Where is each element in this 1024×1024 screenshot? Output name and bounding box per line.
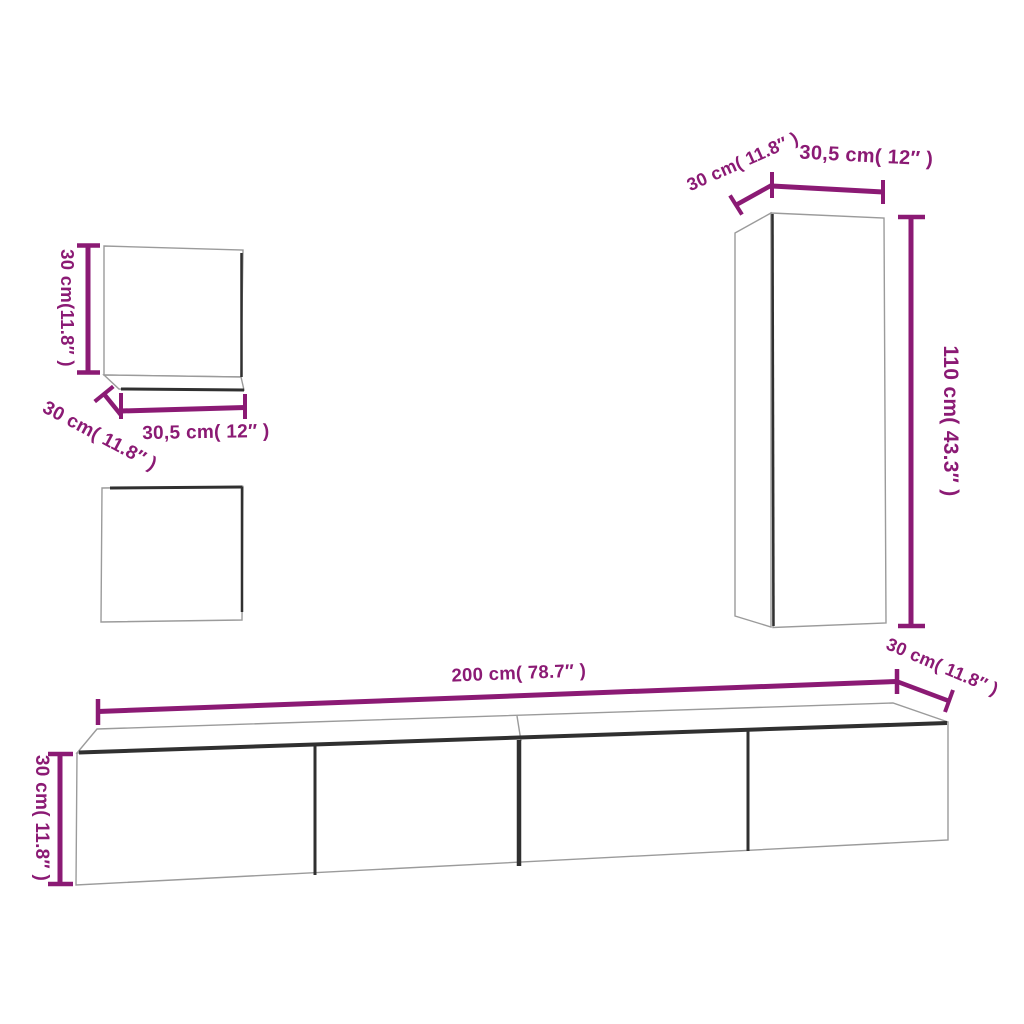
product-dimension-image: 30 cm(11.8″ ) 30 cm( 11.8″ ) 30,5 cm( 12… [0,0,1024,1024]
tv-stand [76,703,948,885]
width-dimension-line [772,186,883,192]
cabinet-front-face [101,487,243,623]
depth-dimension-line [104,394,121,415]
cabinet-door-edge-shadow [773,214,774,626]
width-label: 30,5 cm( 12″ ) [799,142,934,171]
cabinet-underside-shadow [121,389,244,390]
wall-cabinet-small-top [104,246,244,390]
depth-dimension-line [736,185,772,205]
cabinet-front-face [104,246,243,377]
width-label: 30,5 cm( 12″ ) [142,421,270,444]
width-dimension-line [121,408,245,412]
wall-cabinet-small-bottom [101,487,243,623]
height-label: 110 cm( 43.3″ ) [939,345,962,496]
height-label: 30 cm(11.8″ ) [57,249,78,367]
width-label: 200 cm( 78.7″ ) [451,659,586,685]
cabinet-side-face [735,213,771,627]
cabinet-front-face [771,213,886,628]
depth-label: 30 cm( 11.8″ ) [883,634,1001,699]
height-label: 30 cm( 11.8″ ) [31,755,52,881]
wall-cabinet-tall [735,213,886,628]
depth-dimension-line [897,682,949,702]
dimension-diagram: 30 cm(11.8″ ) 30 cm( 11.8″ ) 30,5 cm( 12… [0,0,1024,1024]
cabinet-top-shadow [110,487,243,488]
